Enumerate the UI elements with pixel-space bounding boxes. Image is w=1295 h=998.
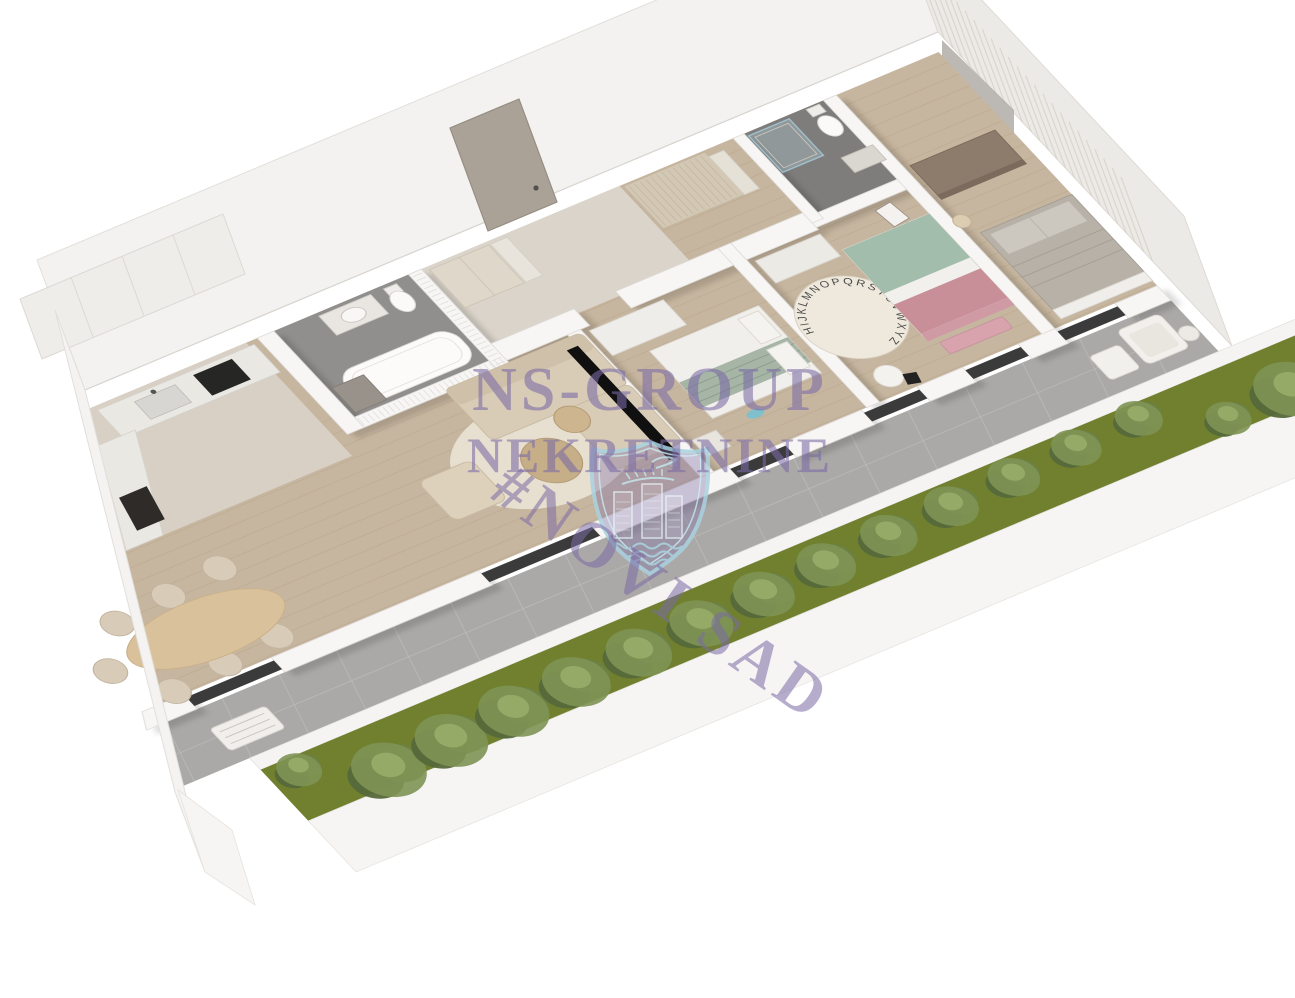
floor-plan-render: HIJKLMNOPQRSTUVWXYZ [0,0,1295,998]
logo-tower [666,496,682,538]
watermark-line1: NS-GROUP [472,356,828,424]
door-handle [533,185,538,190]
floor-plan-scene: HIJKLMNOPQRSTUVWXYZ [0,0,1295,998]
dining-chair [86,654,134,688]
logo-tower [642,484,662,538]
left-parapet [178,790,255,905]
